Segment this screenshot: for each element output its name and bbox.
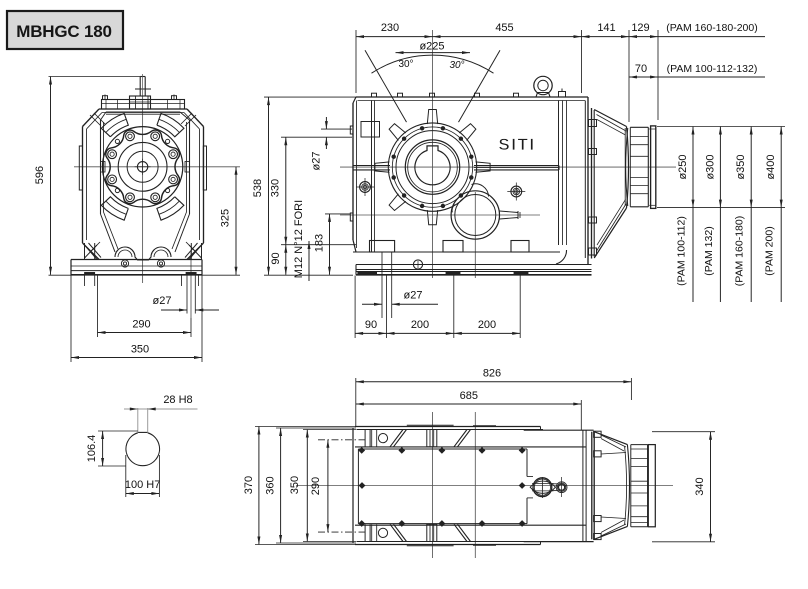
svg-text:129: 129 bbox=[631, 22, 649, 34]
svg-text:685: 685 bbox=[460, 390, 478, 402]
svg-text:370: 370 bbox=[243, 476, 255, 494]
svg-text:90: 90 bbox=[270, 252, 282, 264]
svg-text:28 H8: 28 H8 bbox=[163, 394, 192, 406]
svg-text:141: 141 bbox=[597, 22, 615, 34]
svg-text:(PAM 132): (PAM 132) bbox=[703, 226, 715, 275]
svg-text:538: 538 bbox=[252, 179, 264, 197]
svg-text:30°: 30° bbox=[449, 60, 464, 71]
svg-text:30°: 30° bbox=[398, 59, 413, 70]
svg-text:230: 230 bbox=[381, 22, 399, 34]
svg-text:200: 200 bbox=[411, 319, 429, 331]
svg-text:M12 N°12 FORI: M12 N°12 FORI bbox=[293, 200, 305, 278]
svg-text:290: 290 bbox=[310, 477, 322, 495]
svg-text:826: 826 bbox=[483, 368, 501, 380]
svg-text:ø250: ø250 bbox=[677, 154, 689, 179]
svg-text:(PAM 200): (PAM 200) bbox=[764, 226, 776, 275]
svg-text:350: 350 bbox=[289, 476, 301, 494]
svg-text:ø27: ø27 bbox=[404, 290, 423, 302]
svg-text:90: 90 bbox=[365, 319, 377, 331]
svg-text:340: 340 bbox=[694, 477, 706, 495]
svg-text:ø27: ø27 bbox=[153, 295, 172, 307]
svg-text:(PAM 160-180-200): (PAM 160-180-200) bbox=[666, 22, 757, 34]
svg-text:MBHGC 180: MBHGC 180 bbox=[16, 22, 112, 41]
svg-text:ø400: ø400 bbox=[765, 154, 777, 179]
svg-text:100 H7: 100 H7 bbox=[125, 479, 160, 491]
svg-text:SITI: SITI bbox=[498, 135, 535, 154]
svg-text:455: 455 bbox=[495, 22, 513, 34]
svg-text:70: 70 bbox=[635, 63, 647, 75]
svg-text:596: 596 bbox=[34, 166, 46, 184]
svg-text:(PAM 100-112): (PAM 100-112) bbox=[676, 216, 688, 286]
svg-text:ø300: ø300 bbox=[704, 154, 716, 179]
svg-text:290: 290 bbox=[132, 319, 150, 331]
svg-text:106.4: 106.4 bbox=[86, 435, 98, 463]
svg-text:330: 330 bbox=[270, 179, 282, 197]
svg-text:360: 360 bbox=[265, 476, 277, 494]
svg-text:(PAM 100-112-132): (PAM 100-112-132) bbox=[667, 63, 758, 75]
svg-text:183: 183 bbox=[314, 234, 326, 252]
svg-text:(PAM 160-180): (PAM 160-180) bbox=[734, 216, 746, 286]
svg-text:ø27: ø27 bbox=[311, 152, 323, 171]
svg-text:325: 325 bbox=[220, 209, 232, 227]
svg-text:200: 200 bbox=[478, 319, 496, 331]
svg-text:ø225: ø225 bbox=[419, 40, 444, 52]
svg-text:350: 350 bbox=[131, 344, 149, 356]
svg-text:ø350: ø350 bbox=[735, 154, 747, 179]
